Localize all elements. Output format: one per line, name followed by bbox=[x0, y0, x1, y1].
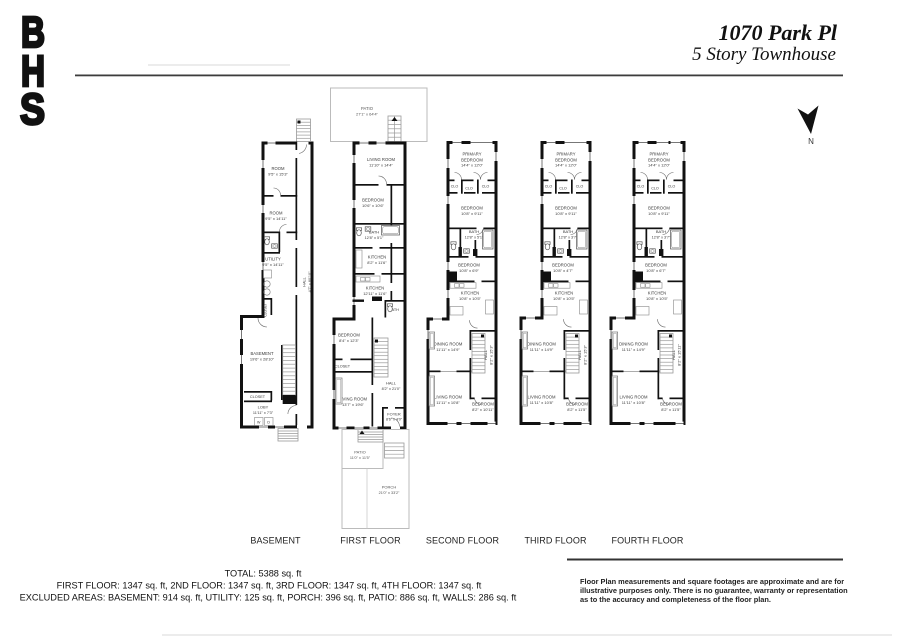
svg-text:4'7" x 80'10": 4'7" x 80'10" bbox=[308, 271, 312, 292]
svg-text:LIVING ROOM: LIVING ROOM bbox=[434, 395, 462, 400]
svg-text:BATH: BATH bbox=[563, 229, 573, 234]
svg-text:THIRD FLOOR: THIRD FLOOR bbox=[524, 536, 587, 546]
svg-text:8'2" x 11'5": 8'2" x 11'5" bbox=[567, 407, 587, 412]
svg-text:ROOM: ROOM bbox=[269, 211, 283, 216]
svg-text:9'5" x 15'3": 9'5" x 15'3" bbox=[268, 172, 288, 177]
svg-text:PORCH: PORCH bbox=[382, 485, 397, 490]
svg-text:BEDROOM: BEDROOM bbox=[555, 206, 577, 211]
svg-text:9'5" x 14'11": 9'5" x 14'11" bbox=[262, 262, 284, 267]
svg-text:10'8" x 10'5": 10'8" x 10'5" bbox=[553, 296, 576, 301]
svg-text:Floor Plan measurements and sq: Floor Plan measurements and square foota… bbox=[580, 577, 844, 586]
svg-text:HALL: HALL bbox=[671, 349, 676, 360]
svg-text:11'11" x 10'8": 11'11" x 10'8" bbox=[436, 400, 460, 405]
svg-text:27'1" x 64'4": 27'1" x 64'4" bbox=[356, 112, 379, 117]
svg-text:CLO: CLO bbox=[637, 185, 645, 189]
svg-text:8'2" x 11'6": 8'2" x 11'6" bbox=[367, 260, 387, 265]
svg-text:11'11" x 14'9": 11'11" x 14'9" bbox=[530, 347, 554, 352]
svg-text:9'5" x 14'11": 9'5" x 14'11" bbox=[265, 216, 287, 221]
svg-text:11'0" x 11'5": 11'0" x 11'5" bbox=[350, 456, 371, 460]
svg-text:BATH: BATH bbox=[469, 229, 479, 234]
svg-text:UTILITY: UTILITY bbox=[265, 257, 281, 262]
svg-text:BASEMENT: BASEMENT bbox=[250, 536, 301, 546]
svg-text:PRIMARY: PRIMARY bbox=[649, 152, 668, 157]
svg-text:10'8" x 4'7": 10'8" x 4'7" bbox=[553, 268, 573, 273]
svg-text:8'4" x 12'3": 8'4" x 12'3" bbox=[339, 338, 359, 343]
svg-text:HALL: HALL bbox=[386, 381, 397, 386]
svg-text:12'8" x 5'1": 12'8" x 5'1" bbox=[365, 236, 384, 240]
svg-text:CLOSET: CLOSET bbox=[335, 365, 351, 369]
svg-text:10'8" x 10'5": 10'8" x 10'5" bbox=[646, 296, 669, 301]
svg-text:10'8" x 6'7": 10'8" x 6'7" bbox=[646, 268, 666, 273]
svg-text:BEDROOM: BEDROOM bbox=[458, 263, 480, 268]
svg-text:12'11" x 11'6": 12'11" x 11'6" bbox=[363, 291, 387, 296]
svg-text:BEDROOM: BEDROOM bbox=[472, 402, 494, 407]
svg-text:KITCHEN: KITCHEN bbox=[461, 291, 479, 296]
svg-text:PRIMARY: PRIMARY bbox=[462, 152, 481, 157]
svg-text:11'11" x 14'9": 11'11" x 14'9" bbox=[436, 347, 460, 352]
svg-text:BEDROOM: BEDROOM bbox=[338, 333, 360, 338]
svg-text:SECOND FLOOR: SECOND FLOOR bbox=[426, 536, 500, 546]
svg-text:KITCHEN: KITCHEN bbox=[368, 255, 386, 260]
svg-text:FOURTH FLOOR: FOURTH FLOOR bbox=[611, 536, 683, 546]
svg-text:ROOM: ROOM bbox=[271, 166, 285, 171]
svg-text:BEDROOM: BEDROOM bbox=[645, 263, 667, 268]
svg-text:CLO: CLO bbox=[465, 187, 473, 191]
svg-text:LIVING ROOM: LIVING ROOM bbox=[528, 395, 556, 400]
svg-text:10'8" x 6'9": 10'8" x 6'9" bbox=[459, 268, 479, 273]
svg-text:21'0" x 33'2": 21'0" x 33'2" bbox=[379, 491, 400, 495]
svg-text:10'8" x 9'11": 10'8" x 9'11" bbox=[648, 211, 670, 216]
svg-text:DINING ROOM: DINING ROOM bbox=[619, 342, 648, 347]
svg-text:KITCHEN: KITCHEN bbox=[366, 286, 384, 291]
svg-text:TOTAL: 5388 sq. ft: TOTAL: 5388 sq. ft bbox=[225, 569, 302, 579]
svg-text:BEDROOM: BEDROOM bbox=[461, 206, 483, 211]
svg-text:CLOSET: CLOSET bbox=[250, 395, 266, 399]
svg-text:PATIO: PATIO bbox=[354, 450, 365, 455]
svg-text:CLO: CLO bbox=[451, 185, 459, 189]
svg-text:S: S bbox=[20, 85, 45, 134]
svg-text:19'6" x 28'10": 19'6" x 28'10" bbox=[250, 357, 275, 362]
svg-text:CLO: CLO bbox=[482, 185, 490, 189]
svg-text:8'2" x 11'5": 8'2" x 11'5" bbox=[661, 407, 681, 412]
svg-text:10'8" x 10'5": 10'8" x 10'5" bbox=[459, 296, 482, 301]
svg-text:CLOSET: CLOSET bbox=[264, 303, 268, 317]
svg-text:10'8" x 9'11": 10'8" x 9'11" bbox=[555, 211, 577, 216]
svg-text:12'8" x 5'1": 12'8" x 5'1" bbox=[465, 236, 484, 240]
svg-text:W: W bbox=[257, 421, 261, 425]
svg-text:BEDROOM: BEDROOM bbox=[660, 402, 682, 407]
svg-text:LOBY: LOBY bbox=[258, 405, 269, 410]
svg-text:14'4" x 12'0": 14'4" x 12'0" bbox=[461, 163, 484, 168]
svg-text:CLO: CLO bbox=[576, 185, 584, 189]
svg-text:8'2" x 10'11": 8'2" x 10'11" bbox=[472, 407, 494, 412]
svg-text:11'11" x 10'8": 11'11" x 10'8" bbox=[622, 400, 646, 405]
svg-text:FOYER: FOYER bbox=[387, 412, 401, 417]
svg-text:14'4" x 12'0": 14'4" x 12'0" bbox=[555, 163, 578, 168]
svg-text:11'11" x 7'3": 11'11" x 7'3" bbox=[253, 411, 274, 415]
svg-text:BATH: BATH bbox=[656, 229, 666, 234]
svg-text:PATIO: PATIO bbox=[361, 106, 374, 111]
svg-text:LIVING ROOM: LIVING ROOM bbox=[367, 157, 395, 162]
svg-text:CLO: CLO bbox=[651, 187, 659, 191]
svg-text:D: D bbox=[267, 421, 270, 425]
svg-text:BEDROOM: BEDROOM bbox=[648, 206, 670, 211]
svg-text:DINING ROOM: DINING ROOM bbox=[527, 342, 556, 347]
svg-text:12'8" x 3'7": 12'8" x 3'7" bbox=[652, 236, 671, 240]
svg-text:13'7" x 19'6": 13'7" x 19'6" bbox=[342, 402, 365, 407]
svg-text:EXCLUDED AREAS: BASEMENT: 914: EXCLUDED AREAS: BASEMENT: 914 sq. ft, UT… bbox=[20, 593, 517, 603]
svg-text:HALL: HALL bbox=[303, 277, 307, 287]
svg-text:illustrative purposes only. Th: illustrative purposes only. There is no … bbox=[580, 586, 848, 595]
svg-text:11'11" x 10'8": 11'11" x 10'8" bbox=[530, 400, 554, 405]
svg-text:8'6" x 4'0": 8'6" x 4'0" bbox=[386, 418, 403, 422]
svg-text:HALL: HALL bbox=[577, 349, 582, 360]
svg-text:1070 Park Pl: 1070 Park Pl bbox=[718, 20, 837, 45]
svg-text:CLO: CLO bbox=[545, 185, 553, 189]
svg-text:BEDROOM: BEDROOM bbox=[566, 402, 588, 407]
svg-text:PRIMARY: PRIMARY bbox=[556, 152, 575, 157]
svg-text:KITCHEN: KITCHEN bbox=[555, 291, 573, 296]
svg-text:LIVING ROOM: LIVING ROOM bbox=[620, 395, 648, 400]
svg-text:5 Story Townhouse: 5 Story Townhouse bbox=[692, 44, 836, 65]
svg-text:N: N bbox=[808, 137, 814, 146]
svg-text:HALL: HALL bbox=[483, 349, 488, 360]
svg-text:KITCHEN: KITCHEN bbox=[648, 291, 666, 296]
svg-text:8'2" x 15'3": 8'2" x 15'3" bbox=[489, 345, 494, 365]
svg-text:BASEMENT: BASEMENT bbox=[250, 351, 273, 356]
svg-text:DINING ROOM: DINING ROOM bbox=[434, 342, 463, 347]
svg-text:FIRST FLOOR: 1347 sq. ft, 2ND: FIRST FLOOR: 1347 sq. ft, 2ND FLOOR: 134… bbox=[57, 581, 482, 591]
svg-text:FIRST FLOOR: FIRST FLOOR bbox=[340, 536, 401, 546]
svg-text:as to the accuracy and complet: as to the accuracy and completeness of t… bbox=[580, 595, 771, 604]
svg-text:CLO: CLO bbox=[668, 185, 676, 189]
svg-text:BEDROOM: BEDROOM bbox=[552, 263, 574, 268]
svg-text:10'6" x 10'6": 10'6" x 10'6" bbox=[362, 203, 385, 208]
svg-text:LIVING ROOM: LIVING ROOM bbox=[339, 397, 367, 402]
svg-text:CLO: CLO bbox=[559, 187, 567, 191]
svg-text:12'8" x 3'7": 12'8" x 3'7" bbox=[559, 236, 578, 240]
svg-text:BEDROOM: BEDROOM bbox=[362, 198, 384, 203]
svg-text:8'2" x 15'3": 8'2" x 15'3" bbox=[583, 345, 588, 365]
svg-text:10'8" x 9'11": 10'8" x 9'11" bbox=[461, 211, 483, 216]
svg-text:11'11" x 14'9": 11'11" x 14'9" bbox=[622, 347, 646, 352]
svg-text:14'4" x 12'0": 14'4" x 12'0" bbox=[648, 163, 671, 168]
svg-text:8'2" x 21'0": 8'2" x 21'0" bbox=[382, 387, 401, 391]
svg-text:11'10" x 14'4": 11'10" x 14'4" bbox=[369, 163, 393, 168]
svg-text:8'2" x 15'11": 8'2" x 15'11" bbox=[677, 344, 682, 366]
